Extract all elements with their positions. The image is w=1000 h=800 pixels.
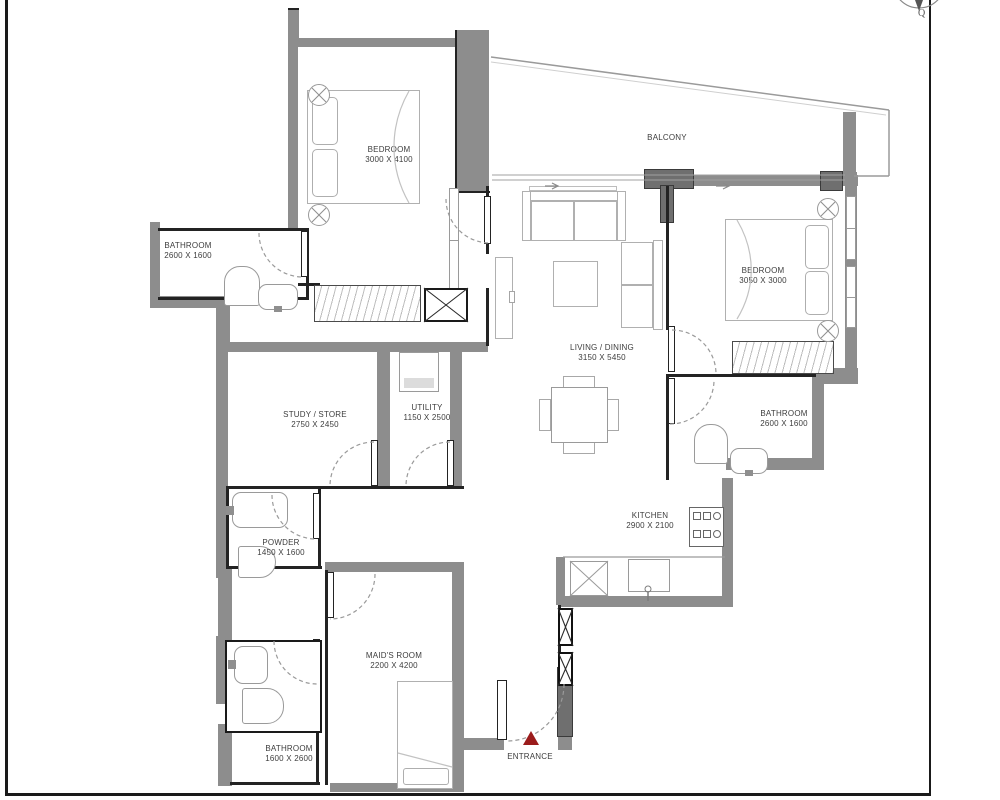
room-dims: 2600 X 1600 (760, 419, 808, 429)
wall-line (456, 191, 490, 193)
door-leaf (327, 572, 334, 618)
wall-segment (452, 562, 464, 790)
dining-table (551, 387, 608, 443)
toilet (224, 266, 260, 306)
sofa-arm (522, 191, 531, 241)
kitchen-sink (628, 559, 670, 592)
pillow (805, 271, 829, 315)
balcony-railing (491, 57, 889, 176)
wall-segment (218, 724, 232, 786)
tv-knob (509, 291, 515, 303)
room-name: BATHROOM (760, 409, 807, 419)
sofa-back (522, 191, 626, 201)
wall-segment (377, 352, 390, 488)
wall-segment (556, 557, 565, 605)
wall-segment (150, 222, 160, 304)
compass-label: Q (918, 8, 925, 19)
pillow (805, 225, 829, 269)
room-label-bathroom-3: BATHROOM 1600 X 2600 (265, 744, 313, 764)
room-dims: 2600 X 1600 (164, 251, 212, 261)
dining-chair (563, 442, 595, 454)
wall-line (226, 489, 229, 569)
sofa-cushion (621, 285, 653, 328)
toilet (242, 688, 284, 724)
wall-line (288, 8, 299, 10)
room-label-bedroom-1: BEDROOM 3000 X 4100 (365, 145, 413, 165)
kitchen-sink-basin (570, 561, 608, 596)
room-name: POWDER (262, 538, 299, 548)
pillow (312, 149, 338, 197)
door-leaf (484, 196, 491, 244)
coffee-table (553, 261, 598, 307)
wall-symbol-icon (817, 320, 839, 342)
sink (232, 492, 288, 528)
door-leaf (668, 326, 675, 372)
wall-segment (843, 112, 856, 176)
door-leaf (313, 493, 320, 539)
window-frame (449, 188, 459, 292)
door-leaf (447, 440, 454, 486)
wall-segment (558, 734, 572, 750)
room-dims: 3000 X 4100 (365, 155, 413, 165)
room-name: UTILITY (411, 403, 442, 413)
room-label-bathroom-2: BATHROOM 2600 X 1600 (760, 409, 808, 429)
frame-left (5, 0, 8, 795)
burner-row (693, 512, 721, 520)
room-dims: 1150 X 2500 (404, 413, 451, 423)
wardrobe-2 (732, 341, 834, 374)
wall-segment (812, 380, 824, 470)
wall-segment (288, 38, 461, 47)
wall-segment (325, 562, 464, 572)
dining-chair (607, 399, 619, 431)
door-leaf (497, 680, 507, 740)
room-dims: 3150 X 5450 (578, 353, 626, 363)
room-label-entrance: ENTRANCE (507, 752, 553, 762)
shaft-box-bedroom (424, 288, 468, 322)
pillow (403, 768, 449, 785)
room-name: LIVING / DINING (570, 343, 634, 353)
frame-bottom (5, 793, 931, 796)
window-frame (846, 196, 856, 260)
wall-symbol-icon (308, 84, 330, 106)
tap (745, 470, 753, 476)
tap (226, 506, 234, 515)
door-leaf (668, 378, 675, 424)
room-name: BEDROOM (368, 145, 411, 155)
sofa-1 (522, 191, 626, 241)
room-name: BATHROOM (164, 241, 211, 251)
tap (228, 660, 236, 669)
wall-symbol-icon (817, 198, 839, 220)
wardrobe-1 (314, 285, 421, 322)
wall-segment-dark (821, 172, 842, 190)
room-dims: 3050 X 3000 (739, 276, 787, 286)
room-dims: 2900 X 2100 (626, 521, 674, 531)
wall-line (668, 374, 816, 377)
washing-machine-door (404, 378, 434, 388)
wall-line (226, 486, 464, 489)
wall-segment (218, 568, 232, 642)
wall-line (158, 228, 306, 231)
wall-segment (558, 596, 733, 607)
wall-segment (222, 342, 488, 352)
window-frame (846, 266, 856, 328)
room-label-bathroom-1: BATHROOM 2600 X 1600 (164, 241, 212, 261)
washing-machine (399, 352, 439, 392)
wall-line (666, 186, 669, 330)
room-label-maids-room: MAID'S ROOM 2200 X 4200 (366, 651, 422, 671)
burner-row (693, 530, 721, 538)
wall-symbol-icon (308, 204, 330, 226)
wall-line (230, 782, 320, 785)
shaft-box (558, 608, 573, 646)
sofa-arm (617, 191, 626, 241)
room-label-utility: UTILITY 1150 X 2500 (404, 403, 451, 423)
wall-line (455, 30, 457, 193)
sink (234, 646, 268, 684)
sofa-back (653, 240, 663, 330)
room-label-kitchen: KITCHEN 2900 X 2100 (626, 511, 674, 531)
room-dims: 2200 X 4200 (370, 661, 418, 671)
entrance-marker-icon (523, 731, 539, 745)
sofa-cushion (621, 242, 653, 285)
room-label-bedroom-2: BEDROOM 3050 X 3000 (739, 266, 787, 286)
room-dims: 2750 X 2450 (291, 420, 339, 430)
stove (689, 507, 724, 547)
wall-line (486, 288, 489, 346)
sofa-cushion (531, 201, 574, 241)
room-name: BATHROOM (265, 744, 312, 754)
toilet (694, 424, 728, 464)
wall-segment (288, 38, 298, 230)
room-label-study-store: STUDY / STORE 2750 X 2450 (283, 410, 347, 430)
sofa-2 (621, 240, 663, 330)
room-dims: 1600 X 2600 (265, 754, 313, 764)
bed-single (397, 681, 453, 789)
wall-segment (456, 30, 489, 193)
room-label-living-dining: LIVING / DINING 3150 X 5450 (570, 343, 634, 363)
room-name: ENTRANCE (507, 752, 553, 762)
wall-line (316, 733, 319, 785)
tap (274, 306, 282, 312)
room-name: BEDROOM (742, 266, 785, 276)
frame-right (929, 0, 931, 795)
door-leaf (371, 440, 378, 486)
room-name: BALCONY (647, 133, 687, 143)
floor-plan: BEDROOM 3000 X 4100 BALCONY BEDROOM 3050… (0, 0, 1000, 800)
door-leaf (301, 231, 308, 277)
room-name: STUDY / STORE (283, 410, 347, 420)
room-label-balcony: BALCONY (647, 133, 687, 143)
dining-chair (539, 399, 551, 431)
room-dims: 1450 X 1600 (257, 548, 305, 558)
room-label-powder: POWDER 1450 X 1600 (257, 538, 305, 558)
sofa-cushion (574, 201, 617, 241)
room-name: MAID'S ROOM (366, 651, 422, 661)
room-name: KITCHEN (632, 511, 669, 521)
wall-segment (288, 10, 299, 40)
shaft-box (558, 652, 573, 686)
